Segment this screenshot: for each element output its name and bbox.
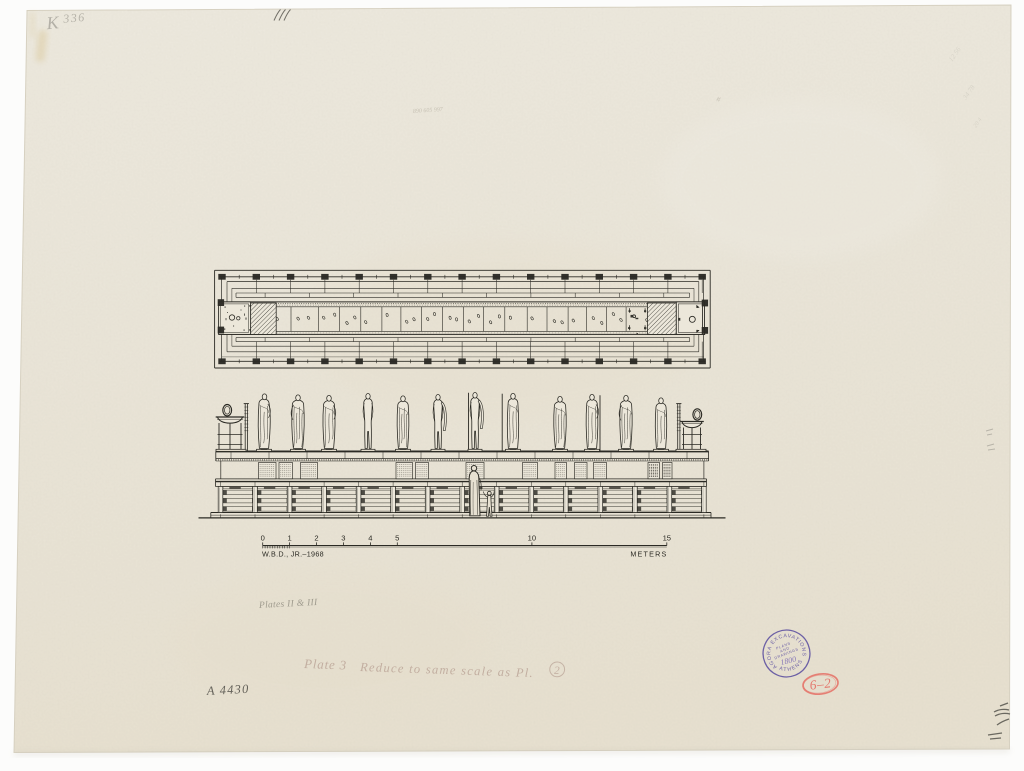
svg-text:1: 1 bbox=[287, 534, 291, 543]
svg-text:2: 2 bbox=[314, 534, 318, 543]
svg-text:0: 0 bbox=[261, 534, 265, 543]
svg-text:A 4430: A 4430 bbox=[205, 682, 249, 698]
svg-text:Plate 3: Plate 3 bbox=[303, 656, 347, 673]
svg-text:4: 4 bbox=[368, 534, 372, 543]
svg-text:336: 336 bbox=[62, 10, 87, 26]
svg-text:2: 2 bbox=[554, 665, 560, 677]
svg-text:5: 5 bbox=[395, 534, 399, 543]
svg-text:W.B.D., JR.–1968: W.B.D., JR.–1968 bbox=[262, 550, 324, 559]
svg-text:15: 15 bbox=[663, 534, 671, 543]
svg-text:METERS: METERS bbox=[630, 550, 667, 559]
svg-text:6–2: 6–2 bbox=[809, 675, 832, 693]
svg-text:10: 10 bbox=[528, 534, 536, 543]
svg-text:3: 3 bbox=[341, 534, 345, 543]
